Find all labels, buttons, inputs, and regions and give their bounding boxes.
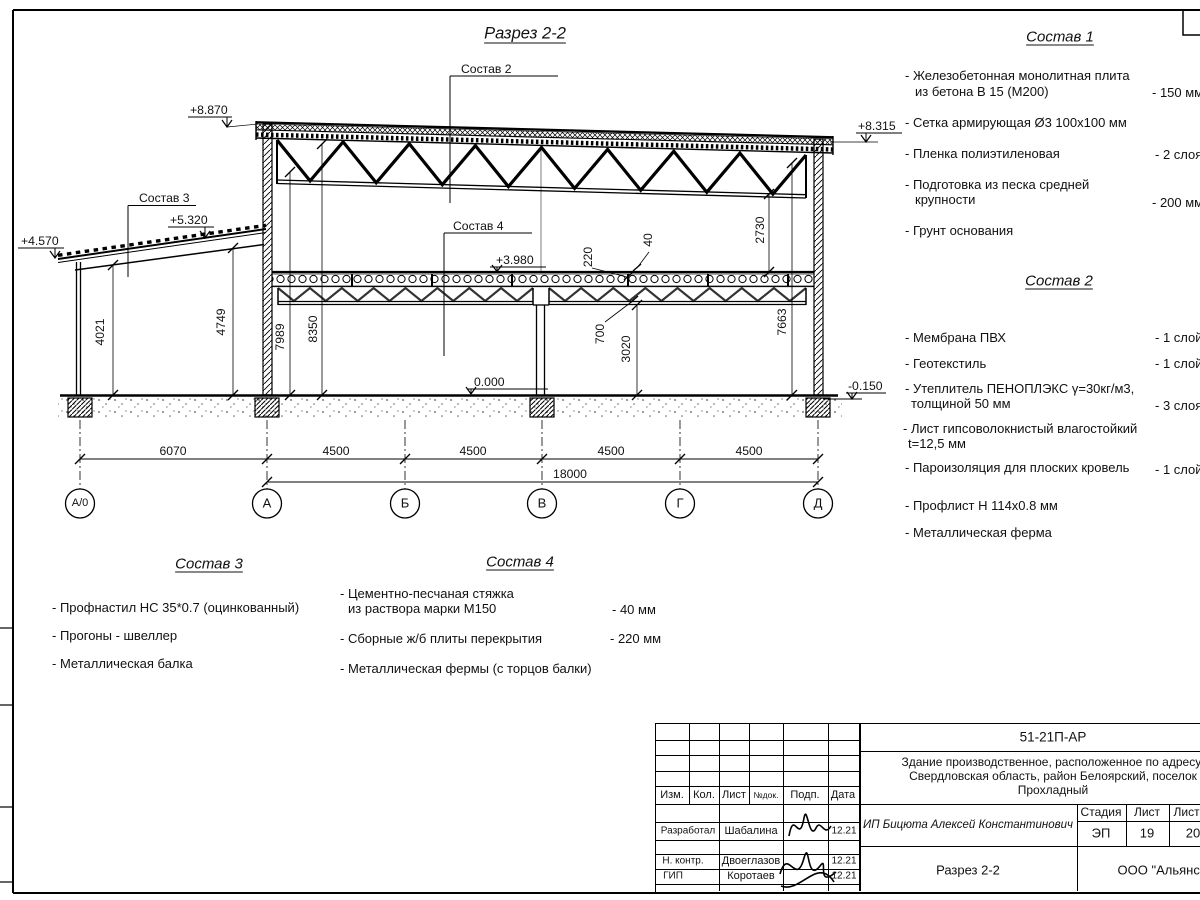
elevation-minus: -0.150 bbox=[848, 379, 883, 393]
wall-axis-a bbox=[263, 124, 272, 395]
sostav1-item4-value: - 200 мм bbox=[1152, 195, 1200, 210]
sostav1-item2-line1: - Сетка армирующая Ø3 100x100 мм bbox=[905, 115, 1127, 130]
titleblock-header-kol: Кол. bbox=[693, 789, 715, 801]
dim-8350: 8350 bbox=[306, 315, 320, 342]
axis-label-a0: А/0 bbox=[72, 497, 89, 509]
titleblock-company: ООО "Альянс" bbox=[1118, 863, 1200, 878]
sostav2-item3-line2: толщиной 50 мм bbox=[911, 396, 1011, 411]
intermediate-floor bbox=[272, 272, 814, 305]
floor-truss-right bbox=[549, 288, 806, 301]
dim-18000: 18000 bbox=[553, 467, 587, 481]
footing-v bbox=[530, 398, 554, 417]
sostav1-item5-line1: - Грунт основания bbox=[905, 223, 1013, 238]
sostav4-item1-value: - 40 мм bbox=[612, 602, 656, 617]
sostav2-item3-line1: - Утеплитель ПЕНОПЛЭКС γ=30кг/м3, bbox=[905, 381, 1134, 396]
leader-label-sostav4: Состав 4 bbox=[453, 219, 504, 233]
elevation-main-right: +8.315 bbox=[858, 119, 896, 133]
footing-a bbox=[255, 398, 279, 417]
annexe-structure bbox=[58, 225, 266, 395]
elevation-marks bbox=[18, 117, 902, 399]
titleblock-sheets-value: 20 bbox=[1186, 826, 1200, 841]
sostav2-item4-line1: - Лист гипсоволокнистый влагостойкий bbox=[903, 421, 1137, 436]
titleblock-row2-name: Двоеглазов bbox=[722, 855, 780, 867]
elevation-floor2: +3.980 bbox=[496, 253, 534, 267]
dim-3020: 3020 bbox=[619, 335, 633, 362]
titleblock-stage-label: Стадия bbox=[1081, 805, 1122, 819]
sostav4-item3-line1: - Металлическая фермы (с торцов балки) bbox=[340, 661, 592, 676]
sostav1-item3-value: - 2 слоя bbox=[1155, 147, 1200, 162]
titleblock-object-line3: Прохладный bbox=[1018, 783, 1088, 797]
titleblock-sheet-label: Лист bbox=[1134, 805, 1160, 819]
sostav3-item3-line1: - Металлическая балка bbox=[52, 656, 193, 671]
dim-6070: 6070 bbox=[159, 444, 186, 458]
sostav2-item5-line1: - Пароизоляция для плоских кровель bbox=[905, 460, 1129, 475]
dim-4500-2: 4500 bbox=[459, 444, 486, 458]
titleblock-row3-name: Коротаев bbox=[727, 870, 775, 882]
wall-axis-d bbox=[814, 139, 823, 395]
titleblock-object-line2: Свердловская область, район Белоярский, … bbox=[909, 769, 1197, 783]
titleblock-row1-date: 12.21 bbox=[831, 826, 856, 837]
titleblock-stage-value: ЭП bbox=[1092, 826, 1111, 841]
sostav2-item5-value: - 1 слой bbox=[1155, 462, 1200, 477]
titleblock-header-ndok: №док. bbox=[754, 790, 779, 800]
axis-grid bbox=[66, 420, 833, 518]
sostav2-item7-line1: - Металлическая ферма bbox=[905, 525, 1052, 540]
titleblock-header-list: Лист bbox=[722, 789, 746, 801]
titleblock-row3-date: 12.21 bbox=[831, 871, 856, 882]
elevation-zero: 0.000 bbox=[474, 375, 505, 389]
axis-label-g: Г bbox=[676, 496, 683, 511]
elevation-main-left: +8.870 bbox=[190, 103, 228, 117]
sostav4-item1-line2: из раствора марки М150 bbox=[348, 601, 496, 616]
main-walls bbox=[263, 124, 823, 395]
dim-4500-4: 4500 bbox=[735, 444, 762, 458]
sostav1-item4-line2: крупности bbox=[915, 192, 975, 207]
dim-4021: 4021 bbox=[93, 318, 107, 345]
drawing-sheet: { "drawing": { "title": "Разрез 2-2", "l… bbox=[0, 0, 1200, 900]
ground-slab bbox=[58, 396, 862, 419]
sostav4-item1-line1: - Цементно-песчаная стяжка bbox=[340, 586, 514, 601]
titleblock-sheet-value: 19 bbox=[1140, 826, 1154, 841]
titleblock-header-izm: Изм. bbox=[660, 789, 684, 801]
sostav1-item3-line1: - Пленка полиэтиленовая bbox=[905, 146, 1060, 161]
titleblock-row2-role: Н. контр. bbox=[662, 856, 703, 867]
frame-corner-box bbox=[1183, 10, 1200, 35]
sostav1-title: Состав 1 bbox=[1026, 29, 1094, 46]
dim-4749: 4749 bbox=[214, 308, 228, 335]
axis-label-b: Б bbox=[401, 496, 410, 511]
dim-7663: 7663 bbox=[775, 308, 789, 335]
sostav3-item1-line1: - Профнастил НС 35*0.7 (оцинкованный) bbox=[52, 600, 299, 615]
axis-label-a: А bbox=[263, 496, 272, 511]
elevation-annex-left: +4.570 bbox=[21, 234, 59, 248]
dim-4500-3: 4500 bbox=[597, 444, 624, 458]
titleblock-client: ИП Бицюта Алексей Константинович bbox=[863, 819, 1073, 831]
titleblock-row3-role: ГИП bbox=[663, 871, 683, 882]
sostav2-title: Состав 2 bbox=[1025, 273, 1093, 290]
dim-40: 40 bbox=[641, 233, 655, 247]
sostav1-item1-line2: из бетона В 15 (М200) bbox=[915, 84, 1049, 99]
leader-label-sostav3: Состав 3 bbox=[139, 191, 190, 205]
titleblock-header-podp: Подп. bbox=[790, 789, 819, 801]
dim-220: 220 bbox=[581, 247, 595, 267]
hollow-core-slabs bbox=[272, 274, 814, 286]
sostav2-item6-line1: - Профлист Н 114x0.8 мм bbox=[905, 498, 1058, 513]
elevation-annex-right: +5.320 bbox=[170, 213, 208, 227]
axis-label-d: Д bbox=[814, 496, 823, 511]
drawing-title: Разрез 2-2 bbox=[484, 25, 566, 44]
sostav2-item2-value: - 1 слой bbox=[1155, 356, 1200, 371]
titleblock-row2-date: 12.21 bbox=[831, 856, 856, 867]
sostav2-item1-value: - 1 слой bbox=[1155, 330, 1200, 345]
titleblock-header-data: Дата bbox=[831, 789, 855, 801]
titleblock-doc-number: 51-21П-АР bbox=[1020, 730, 1087, 745]
annexe-roof-ribs bbox=[58, 225, 266, 255]
sostav4-item2-value: - 220 мм bbox=[610, 631, 661, 646]
sostav1-item1-value: - 150 мм bbox=[1152, 85, 1200, 100]
dim-700: 700 bbox=[593, 324, 607, 344]
titleblock-sheets-label: Листов bbox=[1174, 805, 1200, 819]
titleblock-sheet-title: Разрез 2-2 bbox=[936, 863, 1000, 878]
vertical-dim-lines bbox=[113, 144, 792, 395]
sostav3-item2-line1: - Прогоны - швеллер bbox=[52, 628, 177, 643]
footing-d bbox=[806, 398, 830, 417]
sostav2-item4-line2: t=12,5 мм bbox=[908, 436, 966, 451]
sostav3-title: Состав 3 bbox=[175, 556, 243, 573]
leader-label-sostav2: Состав 2 bbox=[461, 62, 512, 76]
dim-7989: 7989 bbox=[273, 323, 287, 350]
sostav1-item4-line1: - Подготовка из песка средней bbox=[905, 177, 1089, 192]
sostav2-item2-line1: - Геотекстиль bbox=[905, 356, 986, 371]
sostav4-title: Состав 4 bbox=[486, 554, 554, 571]
axis-label-v: В bbox=[538, 496, 547, 511]
dim-4500-1: 4500 bbox=[322, 444, 349, 458]
sostav2-item3-value: - 3 слоя bbox=[1155, 398, 1200, 413]
titleblock-row1-name: Шабалина bbox=[724, 825, 777, 837]
floor-truss-left bbox=[278, 288, 533, 301]
titleblock-row1-role: Разработал bbox=[661, 826, 715, 837]
sostav4-item2-line1: - Сборные ж/б плиты перекрытия bbox=[340, 631, 542, 646]
dim-2730: 2730 bbox=[753, 216, 767, 243]
footing-a0 bbox=[68, 398, 92, 417]
titleblock-object-line1: Здание производственное, расположенное п… bbox=[901, 755, 1200, 769]
title-block: 51-21П-АР Здание производственное, распо… bbox=[655, 723, 1200, 893]
sostav1-item1-line1: - Железобетонная монолитная плита bbox=[905, 68, 1130, 83]
sostav2-item1-line1: - Мембрана ПВХ bbox=[905, 330, 1006, 345]
